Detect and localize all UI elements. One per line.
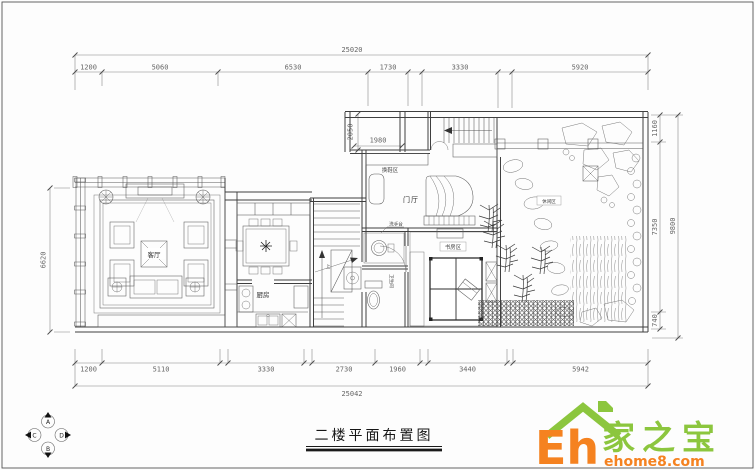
dimension-chain-bottom: 1200 5110 3330 2730 1960 3440 5942 25042 [73,349,651,398]
leisure-label: 休闲区 [542,198,556,205]
dim-top-seg: 1200 [80,63,97,71]
foyer-label: 门厅 [403,195,419,204]
piano-bench [437,229,463,238]
dimension-chain-left: 6620 [40,186,71,335]
dim-alcove-width: 1980 [370,137,387,145]
elevation-symbol: A B C D [25,412,71,458]
planter-box [453,144,497,157]
living-room-label: 客厅 [148,250,162,259]
table-centerpiece [260,240,272,252]
dim-bottom-seg: 3330 [258,366,275,374]
bath-label: 卫生间 [388,274,395,288]
dim-top-seg: 5920 [572,63,589,71]
dim-right-seg: 740 [651,314,659,327]
dim-bottom-seg: 5110 [153,366,170,374]
dining-area [236,203,310,274]
dimension-chain-right: 1160 7350 740 9800 [651,113,683,341]
dim-top-seg: 6530 [285,63,302,71]
pebble-edge [628,154,642,305]
foyer: 换鞋区 门厅 [366,144,497,238]
dimension-chain-top: 25020 1200 5060 6530 1730 3330 5920 [73,46,651,108]
floorplan-drawing: 25020 1200 5060 6530 1730 3330 5920 1200… [0,0,755,470]
dim-top-seg: 5060 [152,63,169,71]
sofa [130,276,182,298]
bamboo-plant-icon [496,244,518,272]
plant-icon [196,190,210,204]
study-table [429,257,483,321]
floorplan-page: 25020 1200 5060 6530 1730 3330 5920 1200… [0,0,755,470]
dining-table [236,219,297,274]
symbol-letter-d: D [59,433,64,440]
kitchen-label: 厨房 [257,290,270,299]
symbol-letter-c: C [32,433,36,440]
staircase-top [431,118,494,150]
dim-bottom-seg: 2730 [336,366,353,374]
dim-bottom-seg: 1200 [80,366,97,374]
door-swing [431,142,448,151]
logo-brand-short: Eh [535,421,599,470]
dim-top-seg: 3330 [452,63,469,71]
logo-site: ehome8.com [604,454,705,470]
dim-bottom-overall: 25042 [341,390,362,398]
tall-grass [570,236,628,322]
fridge [294,286,308,308]
walls [73,112,648,333]
dim-right-overall: 9800 [669,218,677,235]
ehome8-logo: Eh 家之宝 ehome8.com [535,401,722,470]
stair-arrow-icon [319,250,325,258]
logo-brand-cn: 家之宝 [602,418,722,457]
study-label: 书房区 [445,243,462,251]
shoe-cabinet [366,154,428,166]
bamboo-plant-icon [513,274,535,302]
living-room: 客厅 [94,184,225,327]
basin-label: 洗手台 [389,221,403,228]
chimney-icon [598,401,613,412]
drawing-title: 二楼平面布置图 [315,428,434,444]
dim-top-seg: 1730 [380,63,397,71]
drawing-title-block: 二楼平面布置图 [306,428,442,450]
dim-right-seg: 1160 [651,120,659,137]
shoe-bench [369,174,384,204]
door-swing [380,246,406,272]
stair-up-label: 上 [326,263,331,270]
stair-arrow2-icon [350,258,358,264]
shoe-area-label: 换鞋区 [382,166,399,174]
side-tables [108,278,204,296]
dim-bottom-seg: 3440 [459,366,476,374]
washing-machine [344,267,361,289]
symbol-letter-b: B [46,446,50,453]
kitchen-sink [256,314,280,327]
symbol-letter-a: A [46,419,51,426]
dim-right-seg: 7350 [651,219,659,236]
toilet [365,281,382,309]
stove [239,286,253,312]
dim-top-overall: 25020 [341,46,362,54]
bamboo-plant-icon [483,220,505,248]
dim-bottom-seg: 5942 [572,366,589,374]
shrub-bed [478,300,574,326]
grand-piano [424,176,475,238]
garden-terrace: 休闲区 [478,122,641,326]
stair-direction-arrow-icon [444,127,452,134]
staircase-mid: 上 [314,204,361,326]
stepping-stones [502,158,573,318]
dim-bottom-seg: 1960 [389,366,406,374]
plant-icon [99,190,113,204]
dim-left-overall: 6620 [40,252,48,269]
bathroom: 洗手台 卫生间 [364,221,406,310]
kitchen: 厨房 [237,286,308,327]
